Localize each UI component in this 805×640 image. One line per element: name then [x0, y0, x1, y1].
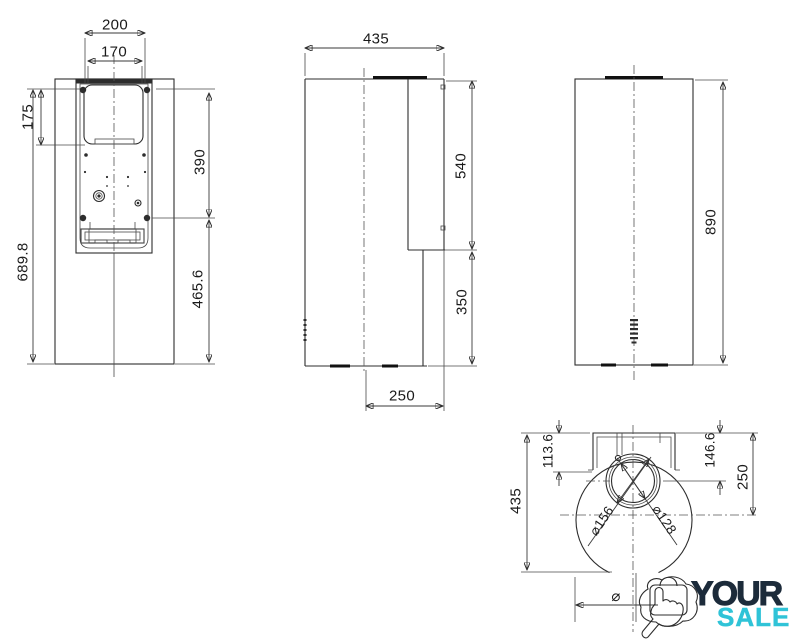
side-view — [304, 48, 478, 411]
dim-175 — [36, 90, 85, 145]
logo-icon — [639, 577, 697, 638]
drawing-linework — [0, 0, 805, 640]
top-mounting-bracket — [588, 433, 680, 470]
logo-blob — [639, 577, 697, 627]
dim-label-bottom-diameter: ⌀ — [611, 587, 620, 605]
dim-label-435-side: 435 — [363, 31, 389, 48]
dim-label-170: 170 — [101, 44, 127, 61]
dim-689-8 — [27, 89, 80, 364]
dim-label-175: 175 — [20, 104, 37, 130]
dim-label-146-6: 146.6 — [703, 432, 718, 467]
dim-label-350: 350 — [454, 289, 471, 315]
dim-label-465-6: 465.6 — [190, 269, 207, 308]
hand-cursor-icon — [642, 588, 683, 638]
front-body-outline — [55, 79, 174, 364]
dim-label-890: 890 — [703, 209, 720, 235]
window-tab — [95, 139, 134, 144]
logo-text-sale: SALE — [717, 602, 790, 633]
dim-label-200: 200 — [102, 17, 128, 34]
dim-113-6 — [553, 420, 592, 486]
bottom-bracket — [81, 222, 144, 243]
dim-435-side — [305, 48, 444, 76]
front-view — [27, 33, 215, 377]
dim-label-250-top: 250 — [735, 464, 752, 490]
small-ringed-hole — [135, 200, 141, 206]
technical-drawing: 200 170 175 689.8 390 465.6 435 540 350 … — [0, 0, 805, 640]
dim-label-540: 540 — [453, 153, 470, 179]
plate-window-cutout — [84, 85, 143, 144]
dim-label-390: 390 — [192, 149, 209, 175]
dim-435-top — [521, 433, 612, 572]
dim-label-689-8: 689.8 — [15, 242, 32, 281]
dim-label-113-6: 113.6 — [541, 434, 556, 468]
dim-label-435-top: 435 — [508, 488, 525, 514]
dim-label-250-side: 250 — [389, 388, 415, 405]
cable-hole — [94, 191, 105, 202]
